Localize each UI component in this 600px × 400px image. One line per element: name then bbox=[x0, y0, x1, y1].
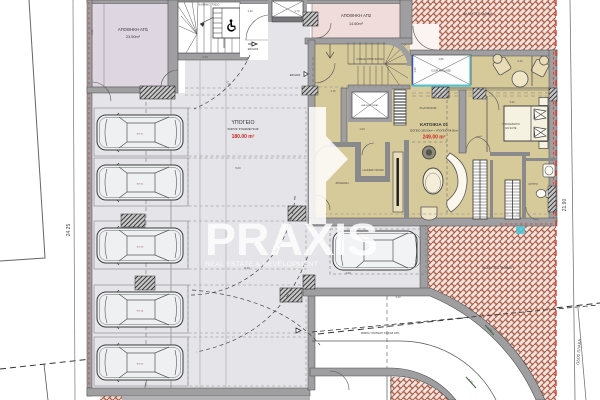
svg-text:ΚΛΙΜΑΚΟΣΤΑΣΙΟ: ΚΛΙΜΑΚΟΣΤΑΣΙΟ bbox=[199, 3, 220, 7]
svg-text:ΕΙΣΟΔΟΣ: ΕΙΣΟΔΟΣ bbox=[290, 74, 301, 77]
svg-text:3.92: 3.92 bbox=[509, 100, 515, 104]
svg-text:ΑΝΕΛΚΥΣΤΗΡΑΣ: ΑΝΕΛΚΥΣΤΗΡΑΣ bbox=[361, 104, 379, 107]
svg-text:14.50m²: 14.50m² bbox=[349, 22, 364, 26]
svg-text:LAUNDRY ROOM: LAUNDRY ROOM bbox=[362, 168, 383, 172]
svg-text:KIT 05: KIT 05 bbox=[137, 364, 144, 366]
svg-text:KIT 04: KIT 04 bbox=[137, 311, 144, 313]
svg-text:ΡΑΜΠΑ ΥΠΟΓΕΙΟΥ ΚΛΙΣΗΣ 18%: ΡΑΜΠΑ ΥΠΟΓΕΙΟΥ ΚΛΙΣΗΣ 18% bbox=[361, 331, 400, 335]
svg-text:PRAXIS: PRAXIS bbox=[205, 214, 378, 265]
svg-text:ΑΠΟΘΗΚΗ: ΑΠΟΘΗΚΗ bbox=[335, 181, 348, 185]
svg-text:4.15: 4.15 bbox=[330, 89, 336, 93]
svg-text:EN SUITE: EN SUITE bbox=[505, 127, 516, 130]
svg-text:ΙΣΟΓΕΙΟ 155.00m² + ΥΠΟΓΕΙΟ 94.: ΙΣΟΓΕΙΟ 155.00m² + ΥΠΟΓΕΙΟ 94.00m² bbox=[410, 129, 458, 133]
svg-text:1.90: 1.90 bbox=[359, 127, 365, 131]
svg-text:ΑΠΟΘΗΚΗ ΑΠ2: ΑΠΟΘΗΚΗ ΑΠ2 bbox=[341, 13, 372, 18]
svg-text:ΕΙΣΟΔΟΣ: ΕΙΣΟΔΟΣ bbox=[248, 48, 259, 51]
svg-text:ΚΑΤΟΙΚΙΑ 01: ΚΑΤΟΙΚΙΑ 01 bbox=[420, 122, 449, 127]
svg-text:KIT 03: KIT 03 bbox=[137, 247, 144, 249]
svg-text:2.30: 2.30 bbox=[202, 55, 208, 59]
svg-text:1.40: 1.40 bbox=[247, 9, 253, 13]
svg-text:1.43: 1.43 bbox=[413, 67, 417, 73]
svg-text:ΧΩΡΟΣ ΣΤΑΘΜΕΥΣΗΣ: ΧΩΡΟΣ ΣΤΑΘΜΕΥΣΗΣ bbox=[227, 127, 259, 131]
svg-text:24.25: 24.25 bbox=[66, 224, 72, 237]
svg-text:5.05: 5.05 bbox=[90, 29, 94, 35]
svg-text:KIT 01: KIT 01 bbox=[137, 134, 144, 136]
svg-text:5.00: 5.00 bbox=[235, 166, 241, 170]
svg-text:23.50m²: 23.50m² bbox=[126, 35, 141, 39]
svg-text:2.40: 2.40 bbox=[517, 59, 523, 63]
svg-text:2.86: 2.86 bbox=[438, 57, 444, 61]
svg-text:180.00 m²: 180.00 m² bbox=[232, 134, 255, 140]
svg-text:ΑΚΑΛΥΠΤΟ ΤΜΗΜΑ: ΑΚΑΛΥΠΤΟ ΤΜΗΜΑ bbox=[463, 12, 493, 16]
svg-text:9.40: 9.40 bbox=[395, 295, 401, 299]
svg-text:ΥΠΟΓΕΙΟ: ΥΠΟΓΕΙΟ bbox=[231, 120, 254, 126]
svg-text:1.70: 1.70 bbox=[294, 9, 300, 13]
svg-text:COUR ANGLAISE: COUR ANGLAISE bbox=[431, 70, 451, 73]
svg-text:ΚΛΙΜΑΚΑ ΠΡΟΣ ΙΣΟΓΕΙΟ: ΚΛΙΜΑΚΑ ΠΡΟΣ ΙΣΟΓΕΙΟ bbox=[357, 58, 384, 61]
svg-text:REAL ESTATE & DEVELOPMENT: REAL ESTATE & DEVELOPMENT bbox=[205, 261, 318, 268]
svg-text:249.00 m²: 249.00 m² bbox=[423, 135, 446, 141]
svg-text:PLAYROOM: PLAYROOM bbox=[420, 106, 437, 110]
svg-text:KIT 02: KIT 02 bbox=[137, 184, 144, 186]
svg-text:21.90: 21.90 bbox=[562, 199, 568, 212]
svg-text:4.90: 4.90 bbox=[345, 271, 351, 275]
svg-text:ΛΟΥΤΡΟ: ΛΟΥΤΡΟ bbox=[528, 184, 538, 186]
svg-text:ΥΠΝΟΔΩΜΑΤΙΟ: ΥΠΝΟΔΩΜΑΤΙΟ bbox=[502, 123, 520, 126]
svg-text:ΑΚΑΛΥΠΤΟ ΤΜΗΜΑ: ΑΚΑΛΥΠΤΟ ΤΜΗΜΑ bbox=[482, 266, 512, 270]
svg-text:ΑΠΟΘΗΚΗ ΑΠ1: ΑΠΟΘΗΚΗ ΑΠ1 bbox=[118, 27, 149, 32]
